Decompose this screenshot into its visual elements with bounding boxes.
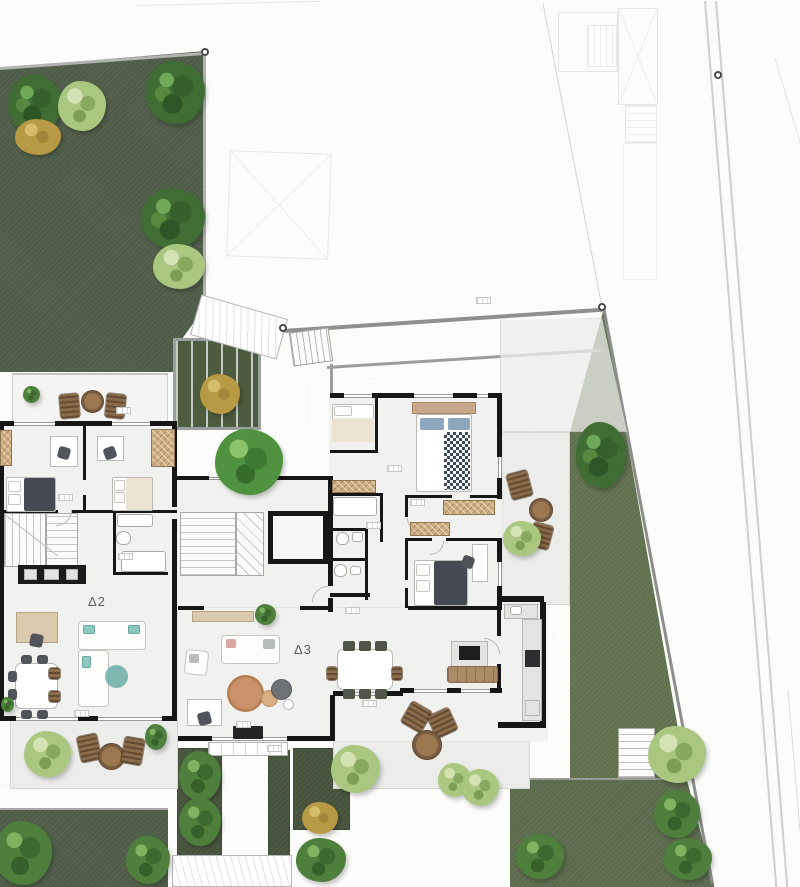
wall: [330, 695, 335, 741]
micro-text: ·························: [68, 366, 158, 371]
toilet: [116, 531, 131, 545]
sofa-pillow: [83, 625, 95, 634]
tree: [576, 422, 626, 488]
shaft-floor: [273, 516, 323, 559]
sofa-pillow: [82, 656, 91, 668]
bed-pillow: [8, 494, 21, 505]
bed-pillow: [420, 418, 444, 430]
road-line: [715, 1, 788, 887]
wall: [405, 538, 408, 580]
coffee-table: [271, 679, 292, 700]
wall: [162, 716, 177, 721]
bush: [664, 838, 712, 880]
road-line: [775, 58, 800, 143]
bush: [654, 790, 700, 838]
tree: [15, 119, 61, 155]
wall: [372, 393, 414, 398]
dining-chair: [21, 710, 32, 719]
dining-chair: [359, 689, 371, 699]
dining-chair: [327, 667, 337, 680]
window: [414, 394, 453, 398]
bed-pillow: [416, 564, 430, 576]
kitchen-sink: [510, 606, 522, 615]
window: [98, 717, 162, 721]
dim-chip: [476, 297, 491, 304]
dining-chair: [37, 655, 48, 664]
wall: [330, 558, 367, 561]
road-line: [704, 1, 777, 887]
wall: [268, 511, 273, 564]
dining-chair: [343, 641, 355, 651]
road-line: [788, 690, 800, 831]
micro-text: ················: [2, 783, 50, 788]
wardrobe: [151, 429, 175, 467]
kitchen-unit: [66, 569, 78, 580]
micro-text: ·····: [374, 767, 392, 772]
bed-blanket: [434, 561, 467, 605]
armchair-pillow: [189, 654, 199, 663]
bed-pillow: [114, 480, 125, 491]
rug: [105, 665, 128, 688]
patio-chair: [59, 393, 80, 419]
entry-stairs: [289, 327, 333, 366]
daybed-pillow: [226, 639, 236, 648]
wall: [497, 393, 502, 457]
wall: [268, 511, 328, 516]
dining-chair: [359, 641, 371, 651]
wall: [365, 528, 368, 600]
wall: [83, 423, 86, 480]
wall: [446, 538, 502, 541]
desk: [472, 544, 488, 582]
patio-chair: [105, 393, 126, 419]
neighbor-strip: [623, 143, 657, 280]
unit-label-d2: Δ2: [88, 594, 106, 609]
window: [112, 422, 150, 426]
patio-table: [81, 390, 104, 413]
micro-text: ··········: [357, 376, 393, 381]
window: [461, 689, 490, 693]
wall: [408, 538, 432, 541]
dim-chip: [345, 607, 360, 614]
tree: [215, 429, 283, 495]
kitchen-hob: [525, 650, 540, 667]
floor-plan: ········································…: [0, 0, 800, 887]
window: [477, 394, 488, 398]
bush: [302, 802, 338, 834]
tree: [153, 244, 205, 289]
bush: [145, 724, 167, 750]
plot-line: [137, 1, 320, 6]
wall: [287, 736, 333, 741]
dining-chair: [375, 689, 387, 699]
bath-sink: [352, 532, 363, 542]
hedge-edge: [0, 808, 168, 810]
bush: [331, 745, 380, 793]
dining-table: [337, 649, 393, 690]
kitchen-sink: [24, 569, 37, 580]
dim-chip: [118, 553, 133, 560]
dining-chair: [375, 641, 387, 651]
kitchen-unit: [525, 700, 540, 716]
wall: [408, 495, 452, 498]
dining-chair: [21, 655, 32, 664]
wall: [408, 606, 502, 610]
dining-chair: [8, 671, 17, 682]
dining-chair: [49, 691, 60, 702]
toilet: [336, 532, 349, 545]
dim-chip: [74, 710, 89, 717]
survey-marker: [598, 303, 606, 311]
wall: [490, 688, 502, 693]
survey-marker: [714, 71, 722, 79]
wall: [497, 610, 501, 636]
bed-blanket: [24, 478, 55, 511]
wardrobe: [410, 522, 450, 536]
bush: [516, 834, 564, 879]
tree: [648, 726, 706, 783]
bed-pillow: [114, 492, 125, 503]
bed-pillow: [416, 580, 430, 592]
micro-text: ·····: [450, 96, 470, 102]
micro-text: ····················: [305, 380, 310, 450]
wall: [453, 393, 477, 398]
stairs-core: [180, 512, 236, 576]
wall: [300, 606, 333, 610]
wall: [178, 606, 204, 610]
console: [192, 611, 254, 622]
plant: [23, 386, 40, 403]
dim-chip: [410, 499, 425, 506]
wall: [178, 736, 212, 741]
bush: [200, 374, 240, 414]
micro-text: ·········: [551, 622, 556, 654]
neighbor-xbox: [618, 8, 658, 105]
tree: [141, 188, 205, 249]
wall: [113, 572, 168, 575]
wall: [330, 393, 344, 398]
survey-marker: [201, 48, 209, 56]
kitchen-hob: [44, 569, 59, 580]
micro-text: ················: [531, 392, 536, 452]
wall: [330, 593, 370, 597]
dim-chip: [116, 407, 131, 414]
wardrobe: [443, 500, 495, 515]
stairs-core: [236, 512, 264, 576]
wall: [470, 495, 502, 498]
wall: [400, 688, 414, 693]
wall: [497, 538, 502, 562]
dining-chair: [392, 667, 402, 680]
desk-chair: [29, 633, 44, 648]
wall: [498, 722, 544, 728]
wall: [330, 450, 378, 453]
wall: [172, 519, 177, 720]
wall: [405, 495, 408, 517]
wall: [0, 716, 16, 721]
dim-chip: [267, 745, 282, 752]
wall: [375, 396, 378, 453]
bush: [503, 521, 541, 556]
wardrobe: [332, 480, 376, 493]
bush: [179, 798, 221, 846]
bath-sink: [350, 566, 361, 575]
bed-pillow: [448, 418, 470, 430]
tree: [146, 61, 205, 124]
wall: [330, 493, 382, 496]
porch-canopy: [172, 855, 292, 887]
bush: [462, 769, 499, 806]
wall: [498, 596, 544, 602]
wall: [330, 528, 367, 531]
bed-blanket: [126, 478, 152, 510]
bathtub: [333, 497, 377, 516]
dim-chip: [58, 494, 73, 501]
bath-sink: [117, 514, 153, 527]
patio-table: [412, 730, 442, 760]
dim-chip: [387, 465, 402, 472]
window: [498, 457, 502, 478]
wall: [405, 588, 408, 608]
wall: [113, 512, 116, 574]
plant: [1, 697, 14, 712]
sofa-pillow: [128, 625, 140, 634]
dim-chip: [362, 700, 377, 707]
wardrobe: [0, 430, 12, 466]
bed-pillow: [8, 481, 21, 492]
wall: [268, 559, 328, 564]
dim-chip: [236, 721, 251, 728]
wall: [175, 476, 209, 480]
wall: [380, 493, 383, 542]
entry-wall: [330, 364, 333, 396]
crib-blanket: [332, 418, 374, 442]
neighbor-stair: [587, 25, 617, 67]
window: [414, 689, 447, 693]
bush: [126, 836, 170, 884]
dining-chair: [343, 689, 355, 699]
patio-table: [529, 498, 553, 522]
headboard: [412, 402, 476, 414]
wall: [447, 688, 461, 693]
skylight-xbox: [226, 150, 332, 259]
daybed-pillow: [263, 639, 275, 649]
tv: [459, 646, 480, 660]
plant: [255, 604, 276, 625]
side-table: [283, 699, 294, 710]
neighbor-ladder: [625, 105, 657, 143]
sofa: [447, 666, 498, 683]
stairs-d2: [4, 513, 46, 567]
crib-pillow: [334, 406, 352, 416]
balcony-rail: [12, 373, 168, 375]
unit-label-d3: Δ3: [294, 642, 312, 657]
window: [498, 562, 502, 586]
bed-throw: [444, 432, 470, 490]
bush: [24, 731, 71, 777]
survey-marker: [279, 324, 287, 332]
bush: [179, 751, 221, 801]
rug: [227, 675, 264, 712]
window: [14, 422, 55, 426]
dim-chip: [366, 522, 381, 529]
dining-chair: [49, 668, 60, 679]
tree: [58, 81, 106, 131]
bush: [296, 838, 346, 882]
toilet: [334, 564, 347, 577]
window: [344, 394, 372, 398]
dining-chair: [37, 710, 48, 719]
